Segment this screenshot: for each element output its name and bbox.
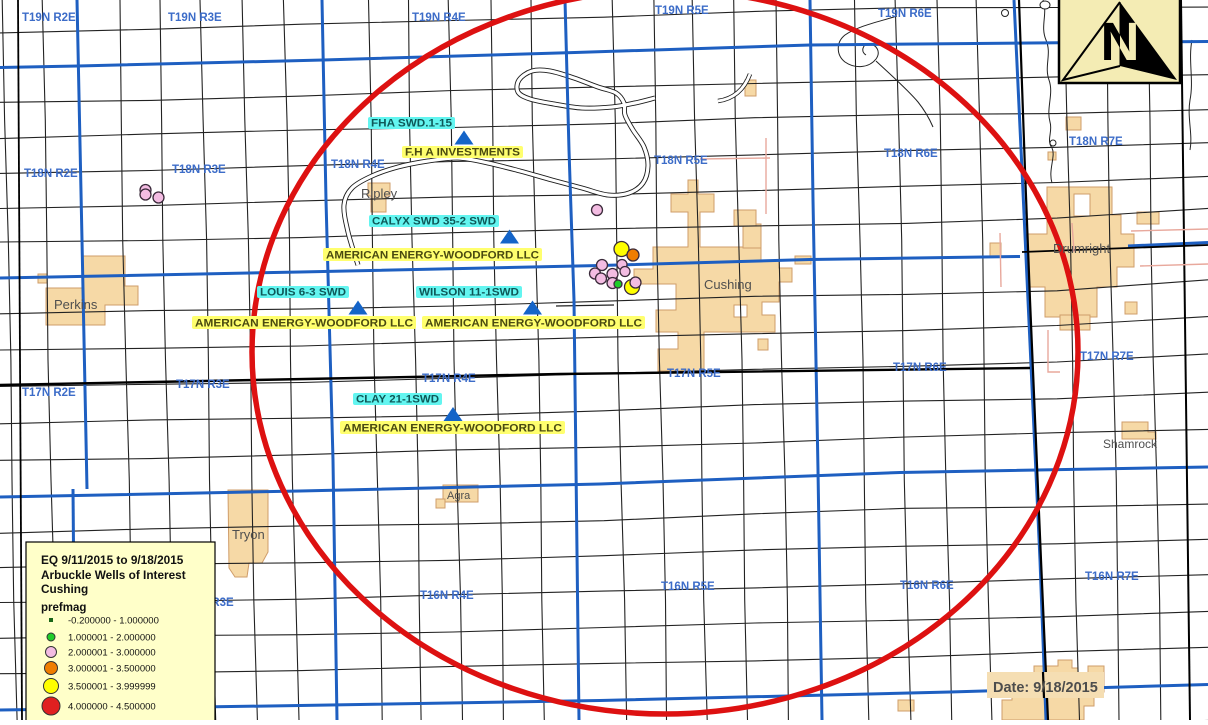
svg-text:AMERICAN ENERGY-WOODFORD LLC: AMERICAN ENERGY-WOODFORD LLC (195, 318, 413, 330)
svg-text:Date: 9/18/2015: Date: 9/18/2015 (993, 680, 1098, 696)
svg-text:T19N R6E: T19N R6E (878, 8, 932, 20)
svg-text:T18N R3E: T18N R3E (172, 164, 226, 176)
svg-text:T17N R7E: T17N R7E (1080, 351, 1134, 363)
svg-text:Drumright: Drumright (1053, 241, 1110, 256)
svg-text:T18N R6E: T18N R6E (884, 148, 938, 160)
svg-text:Arbuckle Wells of Interest: Arbuckle Wells of Interest (41, 568, 186, 582)
svg-text:1.000001 - 2.000000: 1.000001 - 2.000000 (68, 633, 156, 644)
svg-text:Tryon: Tryon (232, 527, 265, 542)
svg-text:AMERICAN ENERGY-WOODFORD LLC: AMERICAN ENERGY-WOODFORD LLC (326, 250, 539, 262)
svg-text:T16N R5E: T16N R5E (661, 581, 715, 593)
svg-text:EQ 9/11/2015 to 9/18/2015: EQ 9/11/2015 to 9/18/2015 (41, 553, 184, 567)
svg-text:T17N R6E: T17N R6E (893, 362, 947, 374)
svg-text:T18N R4E: T18N R4E (331, 159, 385, 171)
svg-text:CALYX SWD 35-2 SWD: CALYX SWD 35-2 SWD (372, 216, 496, 228)
svg-text:LOUIS 6-3 SWD: LOUIS 6-3 SWD (260, 287, 346, 299)
svg-text:T19N R3E: T19N R3E (168, 12, 222, 24)
svg-text:WILSON 11-1SWD: WILSON 11-1SWD (419, 287, 519, 299)
svg-text:Agra: Agra (447, 490, 471, 502)
svg-text:T18N R2E: T18N R2E (24, 168, 78, 180)
svg-text:F.H A INVESTMENTS: F.H A INVESTMENTS (405, 147, 520, 159)
svg-text:T16N R7E: T16N R7E (1085, 571, 1139, 583)
svg-text:T19N R4E: T19N R4E (412, 12, 466, 24)
svg-text:Cushing: Cushing (704, 277, 752, 292)
svg-text:T16N R6E: T16N R6E (900, 580, 954, 592)
svg-text:T16N R4E: T16N R4E (420, 590, 474, 602)
svg-text:CLAY 21-1SWD: CLAY 21-1SWD (356, 394, 439, 406)
svg-text:T18N R5E: T18N R5E (654, 155, 708, 167)
svg-text:AMERICAN ENERGY-WOODFORD LLC: AMERICAN ENERGY-WOODFORD LLC (425, 318, 642, 330)
svg-text:Cushing: Cushing (41, 582, 88, 596)
svg-text:T17N R3E: T17N R3E (176, 379, 230, 391)
svg-text:Shamrock: Shamrock (1103, 437, 1158, 451)
svg-text:T19N R5E: T19N R5E (655, 5, 709, 17)
svg-text:2.000001 - 3.000000: 2.000001 - 3.000000 (68, 648, 156, 659)
svg-text:T17N R5E: T17N R5E (667, 368, 721, 380)
svg-text:FHA SWD.1-15: FHA SWD.1-15 (371, 118, 452, 130)
svg-text:prefmag: prefmag (41, 602, 86, 614)
svg-text:T17N R2E: T17N R2E (22, 387, 76, 399)
svg-text:Perkins: Perkins (54, 297, 98, 312)
svg-text:3.000001 - 3.500000: 3.000001 - 3.500000 (68, 664, 156, 675)
svg-text:4.000000 - 4.500000: 4.000000 - 4.500000 (68, 702, 156, 713)
svg-text:-0.200000 - 1.000000: -0.200000 - 1.000000 (68, 616, 159, 627)
svg-text:AMERICAN ENERGY-WOODFORD LLC: AMERICAN ENERGY-WOODFORD LLC (343, 423, 562, 435)
svg-text:T17N R4E: T17N R4E (422, 373, 476, 385)
svg-text:T18N R7E: T18N R7E (1069, 136, 1123, 148)
svg-text:3.500001 - 3.999999: 3.500001 - 3.999999 (68, 682, 156, 693)
svg-text:T19N R2E: T19N R2E (22, 12, 76, 24)
svg-text:Ripley: Ripley (361, 186, 398, 201)
